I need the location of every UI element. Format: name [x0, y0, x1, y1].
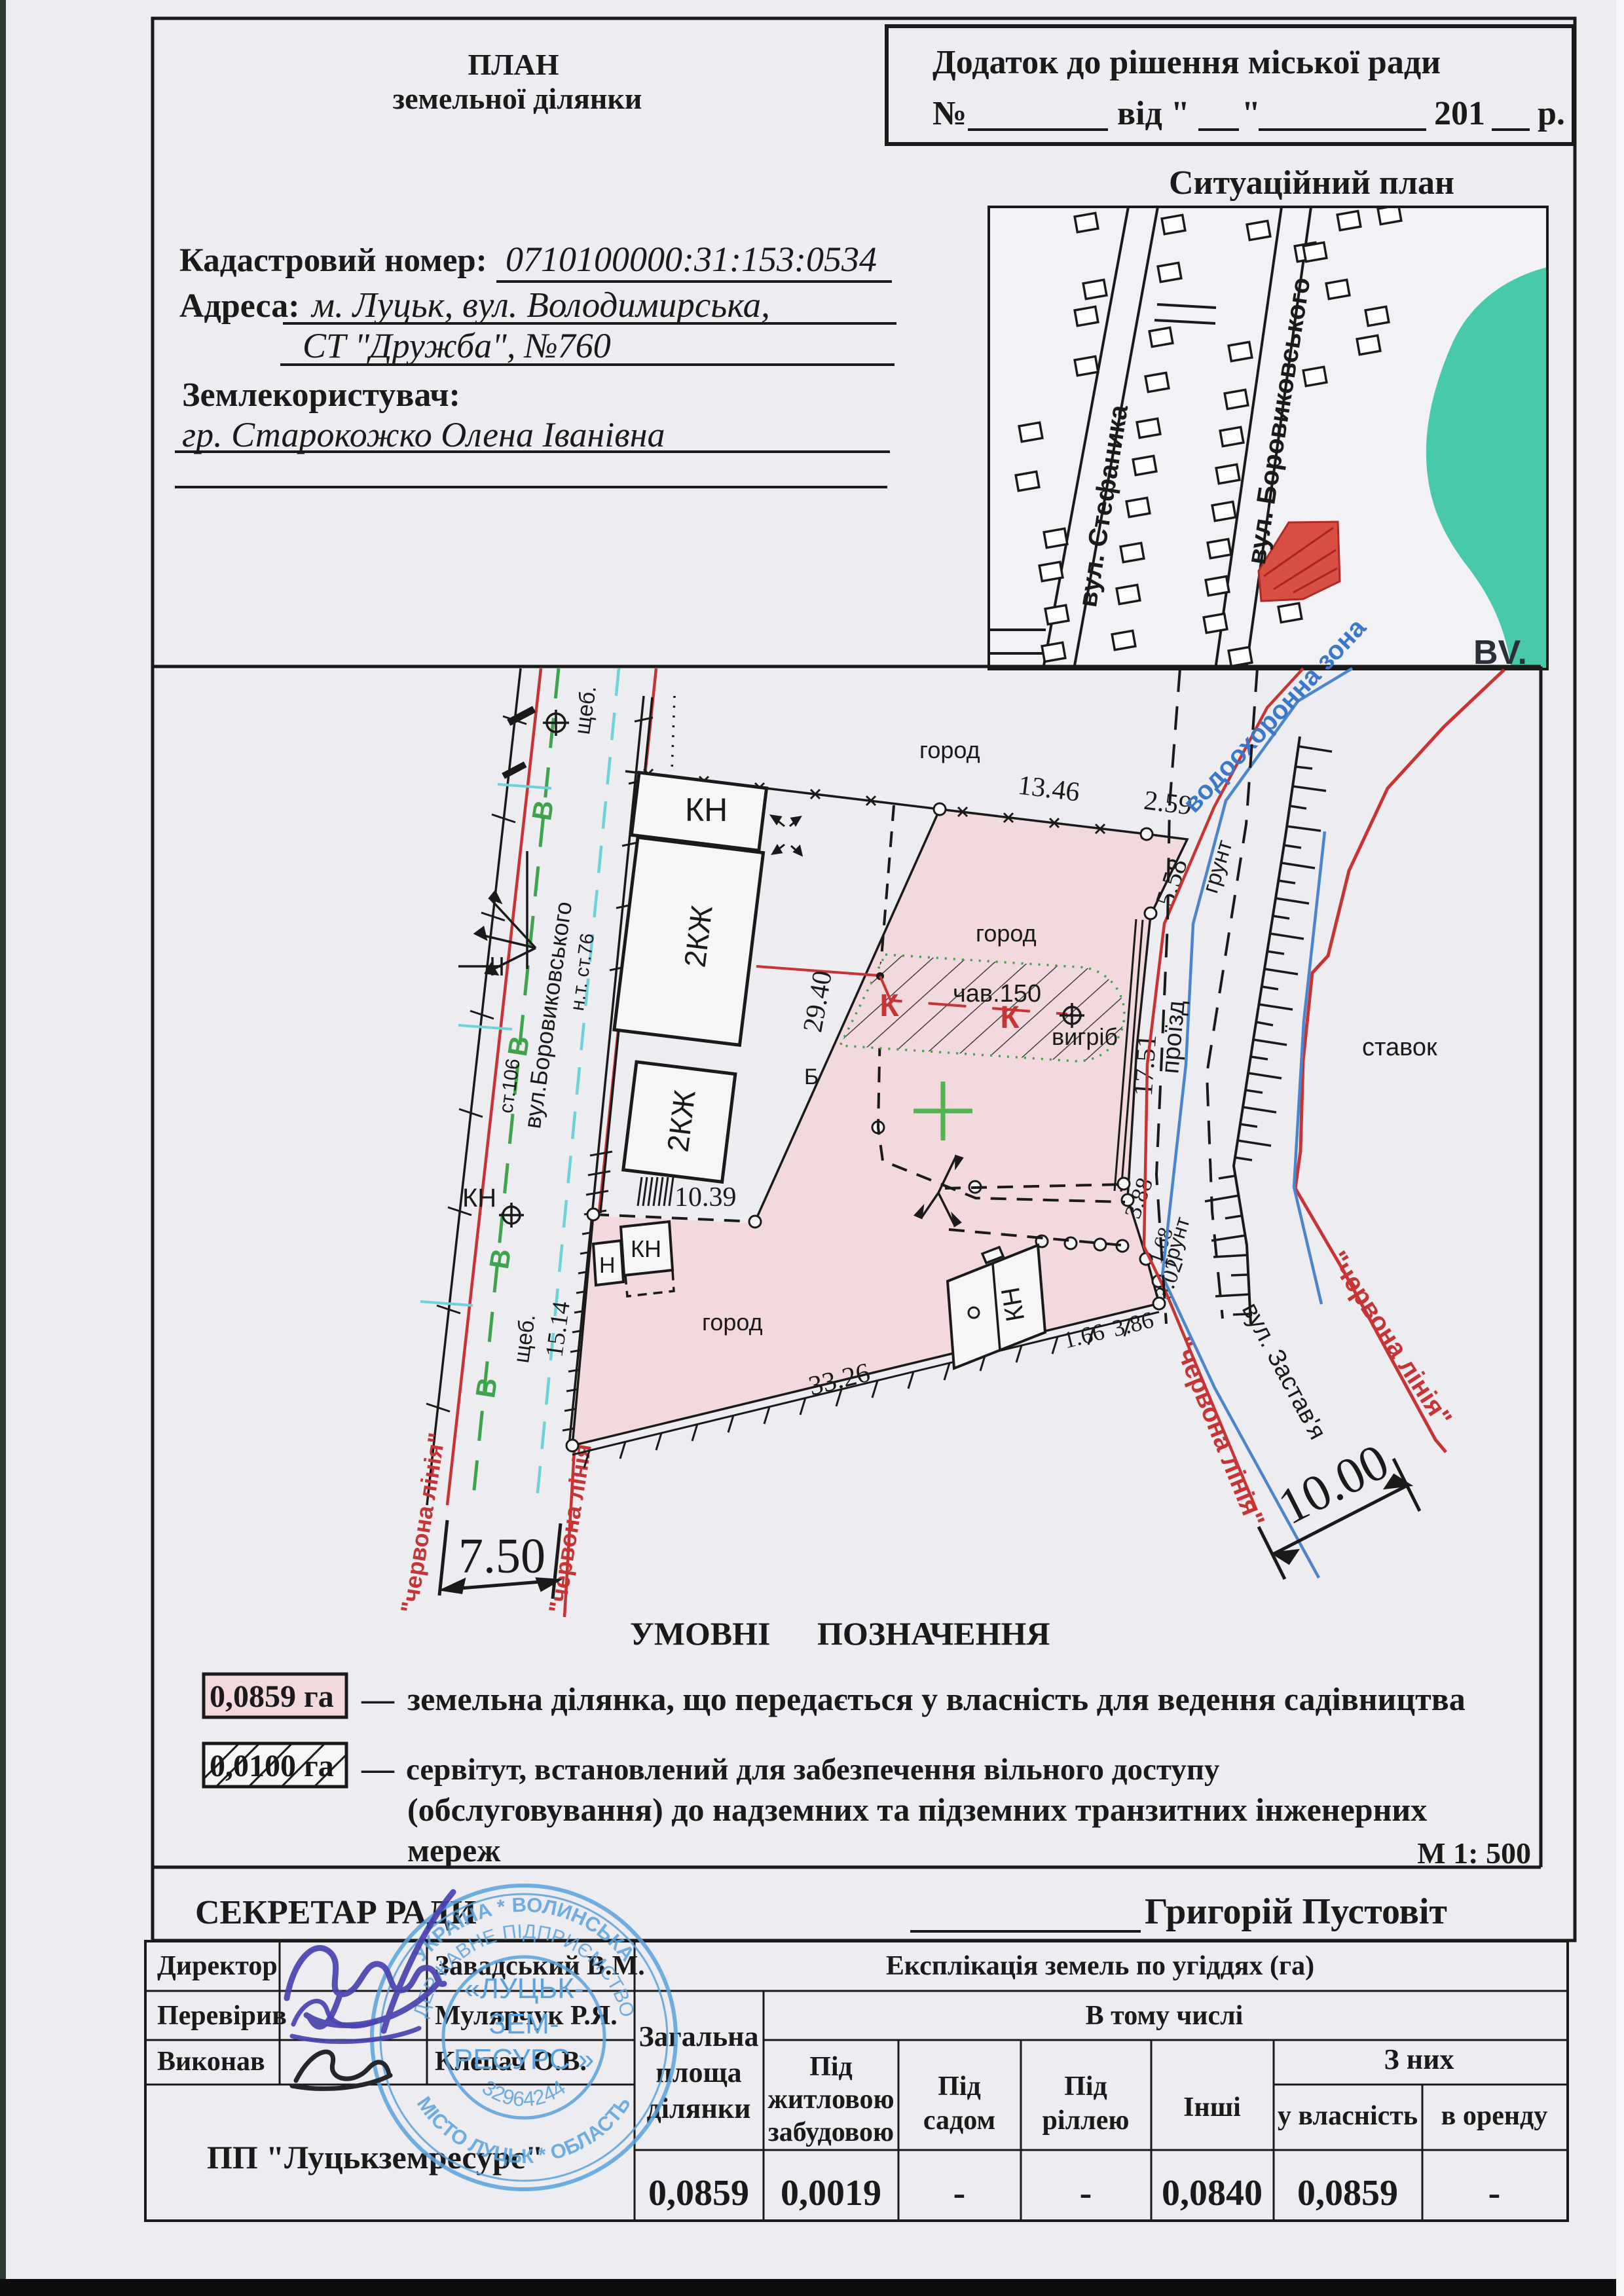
- svg-text:ставок: ставок: [1362, 1034, 1437, 1061]
- svg-text:ріллею: ріллею: [1043, 2105, 1130, 2136]
- svg-text:забудовою: забудовою: [768, 2117, 894, 2147]
- svg-text:Адреса:: Адреса:: [179, 287, 300, 325]
- svg-text:0,0859 га: 0,0859 га: [210, 1679, 334, 1714]
- svg-text:мереж: мереж: [407, 1832, 501, 1868]
- svg-text:0,0859: 0,0859: [648, 2173, 749, 2214]
- svg-text:Додаток до рішення міської ра: Додаток до рішення міської ради: [932, 44, 1441, 81]
- svg-text:садом: садом: [923, 2105, 995, 2136]
- svg-text:Експлікація земель по угіддях: Експлікація земель по угіддях (га): [886, 1951, 1314, 1981]
- svg-text:Виконав: Виконав: [157, 2047, 265, 2077]
- svg-text:0,0840: 0,0840: [1162, 2173, 1263, 2214]
- svg-text:від ": від ": [1117, 95, 1190, 132]
- svg-text:«ЛУЦЬК-: «ЛУЦЬК-: [464, 1973, 583, 2005]
- svg-text:ПОЗНАЧЕННЯ: ПОЗНАЧЕННЯ: [817, 1615, 1050, 1652]
- svg-text:город: город: [919, 737, 980, 763]
- svg-text:Під: Під: [1064, 2071, 1107, 2102]
- svg-text:-: -: [1080, 2173, 1092, 2214]
- svg-text:чав.150: чав.150: [953, 980, 1041, 1008]
- svg-text:УМОВНІ: УМОВНІ: [630, 1615, 770, 1652]
- svg-text:Григорій Пустовіт: Григорій Пустовіт: [1145, 1891, 1447, 1932]
- svg-text:Директор: Директор: [157, 1951, 278, 1981]
- svg-text:Перевірив: Перевірив: [157, 2001, 287, 2031]
- svg-text:гр. Старокожко Олена Іванівна: гр. Старокожко Олена Іванівна: [182, 415, 665, 454]
- svg-text:Кадастровий номер:: Кадастровий номер:: [179, 242, 487, 279]
- svg-text:м. Луцьк, вул. Володимирська,: м. Луцьк, вул. Володимирська,: [310, 285, 770, 325]
- svg-text:М 1: 500: М 1: 500: [1417, 1836, 1531, 1870]
- svg-text:№: №: [932, 95, 967, 132]
- svg-text:Під: Під: [938, 2071, 981, 2102]
- svg-text:у власність: у власність: [1278, 2101, 1418, 2131]
- svg-text:0710100000:31:153:0534: 0710100000:31:153:0534: [506, 240, 877, 279]
- svg-text:(обслуговування) до надземних: (обслуговування) до надземних та підземн…: [407, 1791, 1427, 1828]
- svg-text:сервітут, встановлений для заб: сервітут, встановлений для забезпечення …: [406, 1753, 1220, 1787]
- svg-text:201: 201: [1434, 95, 1485, 132]
- svg-text:К: К: [879, 989, 899, 1023]
- svg-text:—: —: [361, 1750, 395, 1787]
- svg-text:—: —: [361, 1681, 395, 1717]
- svg-text:Інші: Інші: [1183, 2092, 1241, 2123]
- svg-text:0,0100 га: 0,0100 га: [210, 1749, 334, 1783]
- svg-text:вигріб: вигріб: [1052, 1023, 1118, 1050]
- svg-text:-: -: [1488, 2173, 1501, 2214]
- svg-text:З них: З них: [1384, 2043, 1454, 2075]
- svg-text:Ситуаційний план: Ситуаційний план: [1169, 164, 1454, 202]
- svg-text:Під: Під: [809, 2052, 853, 2082]
- svg-text:Н: Н: [599, 1253, 616, 1278]
- svg-text:": ": [1242, 95, 1261, 132]
- svg-text:Б: Б: [804, 1065, 819, 1089]
- svg-text:КН: КН: [631, 1235, 661, 1262]
- svg-text:КН: КН: [462, 1184, 496, 1212]
- svg-text:В тому числі: В тому числі: [1086, 2001, 1244, 2031]
- svg-text:Землекористувач:: Землекористувач:: [182, 376, 460, 414]
- svg-text:р.: р.: [1538, 95, 1565, 132]
- svg-text:город: город: [976, 920, 1037, 947]
- svg-text:7.50: 7.50: [458, 1529, 545, 1584]
- svg-text:0,0859: 0,0859: [1297, 2173, 1398, 2214]
- svg-text:-: -: [953, 2173, 966, 2214]
- svg-text:город: город: [702, 1309, 763, 1336]
- svg-text:КН: КН: [996, 1285, 1030, 1324]
- svg-text:земельної ділянки: земельної ділянки: [393, 82, 642, 115]
- svg-text:в оренду: в оренду: [1441, 2101, 1548, 2131]
- svg-text:житловою: житловою: [767, 2085, 894, 2115]
- svg-text:РЕСУРС »: РЕСУРС »: [454, 2043, 594, 2075]
- svg-text:ПЛАН: ПЛАН: [468, 48, 559, 81]
- svg-text:СТ "Дружба", №760: СТ "Дружба", №760: [303, 326, 611, 365]
- svg-text:0,0019: 0,0019: [781, 2173, 881, 2214]
- svg-text:10.39: 10.39: [674, 1182, 737, 1212]
- svg-text:ЗЕМ-: ЗЕМ-: [489, 2008, 559, 2040]
- svg-text:Загальна: Загальна: [639, 2020, 759, 2052]
- svg-text:КН: КН: [685, 792, 728, 828]
- svg-text:земельна ділянка, що передаєть: земельна ділянка, що передається у власн…: [407, 1681, 1466, 1717]
